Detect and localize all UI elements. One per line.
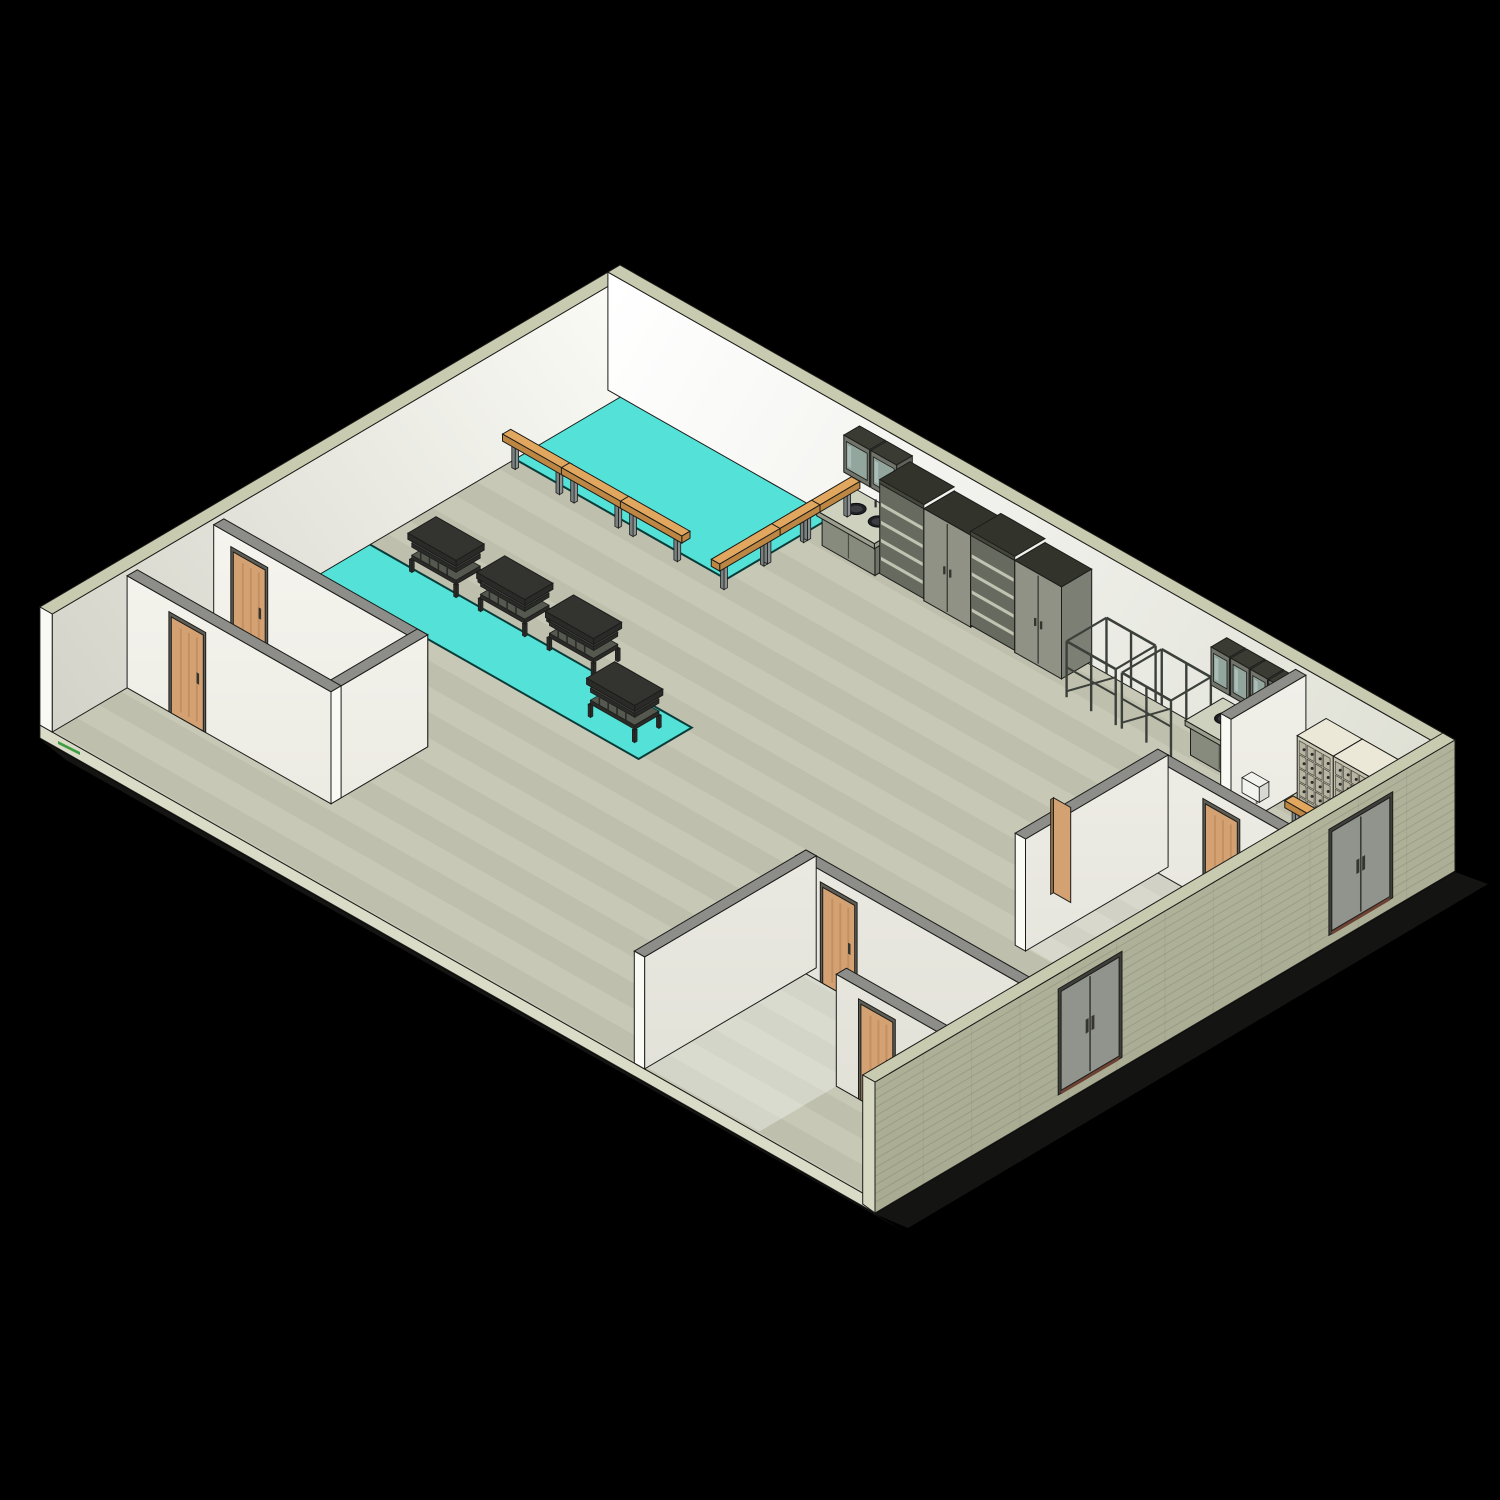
locker-knob — [1355, 778, 1358, 781]
locker-knob — [1327, 790, 1330, 793]
exterior-double-door-east-handle-left[interactable] — [1362, 855, 1365, 871]
center-room-west-wall-endcap — [634, 951, 644, 1069]
shoe-rack-3-face-186[interactable] — [549, 637, 551, 650]
storage-cabinet-2[interactable] — [1015, 543, 1092, 679]
wall-se-corner-return — [863, 1075, 875, 1213]
shoe-rack-4-face-210[interactable] — [635, 729, 637, 742]
wall-cabinet-4-face-46[interactable] — [1235, 668, 1238, 692]
shoe-rack-1-face-145[interactable] — [409, 559, 411, 572]
exterior-double-door-east-handle-right[interactable] — [1356, 858, 1359, 874]
open-door-leaf-edge[interactable] — [1051, 798, 1054, 895]
locker-knob — [1347, 773, 1350, 776]
shoe-rack-3-face-184[interactable] — [615, 648, 618, 661]
shoe-rack-4-face-208[interactable] — [588, 704, 590, 717]
open-door-leaf[interactable] — [1051, 798, 1071, 903]
locker-knob — [1311, 767, 1314, 770]
left-room-south-wall-endcap — [331, 686, 341, 804]
wall-cabinet-1-face-8[interactable] — [848, 445, 851, 468]
shoe-rack-4-face-204[interactable] — [659, 715, 661, 728]
shoe-rack-2-face-165[interactable] — [481, 598, 483, 611]
wall-cabinet-2-face-12[interactable] — [875, 461, 878, 484]
exterior-double-door-south-handle-right[interactable] — [1086, 1018, 1089, 1034]
locker-knob — [1303, 776, 1306, 779]
shoe-rack-3-face-187[interactable] — [547, 637, 550, 650]
locker-knob — [1319, 771, 1322, 774]
shoe-rack-2-face-168[interactable] — [525, 623, 527, 636]
locker-knob — [1303, 790, 1306, 793]
shoe-rack-3-face-183[interactable] — [618, 648, 620, 661]
locker-knob — [1339, 783, 1342, 786]
locker-knob — [1303, 762, 1306, 765]
door-handle[interactable] — [197, 672, 200, 684]
locker-knob — [1303, 748, 1306, 751]
locker-knob — [1339, 769, 1342, 772]
locker-knob — [1319, 799, 1322, 802]
shoe-rack-4-face-207[interactable] — [591, 704, 593, 717]
isometric-floorplan-scene[interactable] — [0, 0, 1500, 1500]
locker-knob — [1319, 785, 1322, 788]
shoe-rack-4-face-205[interactable] — [656, 715, 659, 728]
locker-knob — [1311, 795, 1314, 798]
render-viewport[interactable] — [0, 0, 1500, 1500]
exterior-double-door-south-handle-left[interactable] — [1092, 1015, 1095, 1031]
locker-knob — [1319, 757, 1322, 760]
wall-cabinet-3-face-42[interactable] — [1215, 657, 1219, 681]
shoe-rack-1-face-147[interactable] — [456, 584, 458, 597]
door-handle[interactable] — [848, 943, 851, 955]
shoe-rack-1-face-148[interactable] — [454, 584, 457, 597]
right-room-west-wall-endcap — [1015, 833, 1025, 951]
locker-knob — [1327, 762, 1330, 765]
door-handle[interactable] — [259, 607, 262, 619]
left-room-south-wall-door[interactable] — [169, 612, 206, 733]
locker-knob — [1311, 781, 1314, 784]
wall-nw-endcap — [40, 607, 52, 732]
shoe-rack-4-face-211[interactable] — [632, 729, 634, 742]
locker-knob — [1311, 753, 1314, 756]
locker-knob — [1327, 776, 1330, 779]
shoe-rack-2-face-169[interactable] — [522, 623, 524, 636]
shoe-rack-1-face-144[interactable] — [412, 559, 415, 572]
shoe-rack-2-face-166[interactable] — [478, 598, 480, 611]
open-door-leaf-face[interactable] — [1054, 798, 1071, 903]
sink-counter-1-sink-inner — [850, 506, 863, 513]
